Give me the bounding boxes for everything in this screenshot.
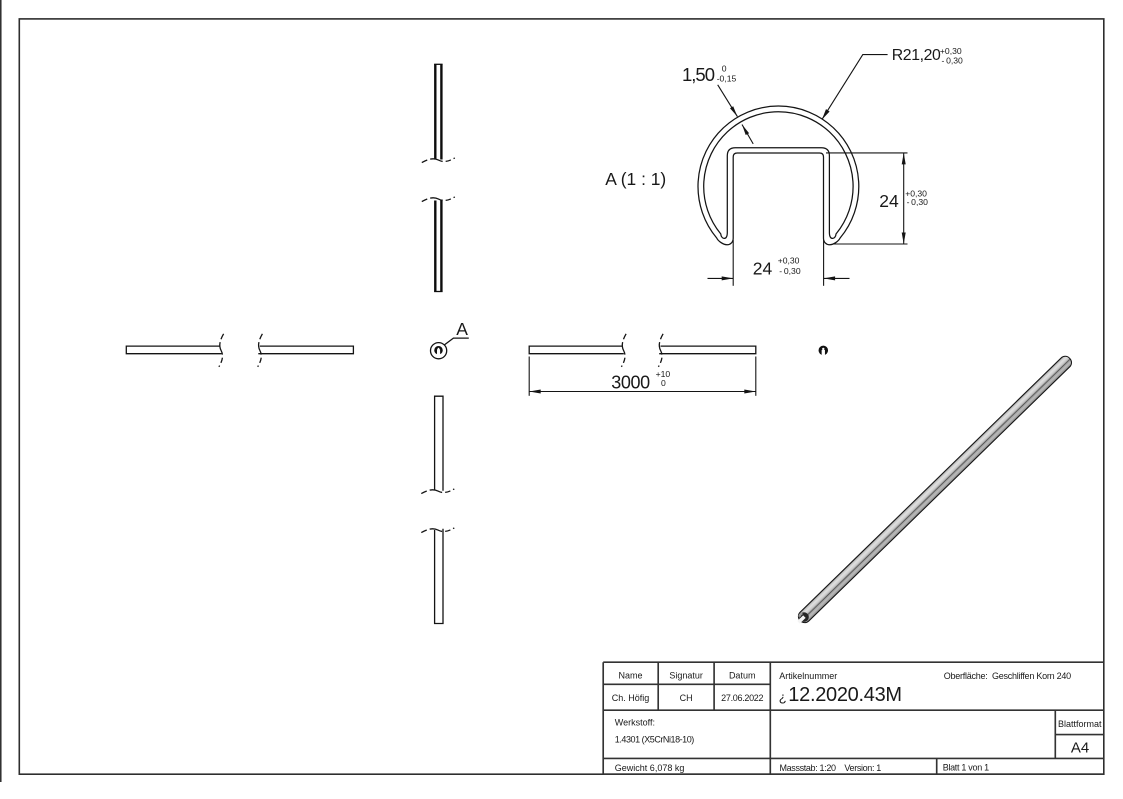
svg-text:1.4301 (X5CrNi18-10): 1.4301 (X5CrNi18-10)	[615, 735, 694, 745]
svg-text:24: 24	[879, 191, 899, 211]
svg-text:0: 0	[661, 378, 666, 388]
svg-text:Blattformat: Blattformat	[1058, 719, 1102, 729]
svg-text:- 0,30: - 0,30	[779, 266, 801, 276]
svg-text:Artikelnummer: Artikelnummer	[779, 671, 837, 681]
svg-text:Ch. Höfig: Ch. Höfig	[612, 693, 650, 703]
svg-text:A (1 : 1): A (1 : 1)	[605, 169, 666, 189]
svg-text:Version: 1: Version: 1	[844, 763, 881, 773]
svg-text:12.2020.43M: 12.2020.43M	[788, 684, 901, 706]
svg-text:24: 24	[753, 259, 773, 279]
svg-text:Datum: Datum	[729, 671, 756, 681]
svg-text:-0,15: -0,15	[717, 73, 737, 83]
svg-text:+0,30: +0,30	[778, 255, 800, 265]
svg-text:27.06.2022: 27.06.2022	[721, 693, 763, 703]
svg-text:Gewicht 6,078 kg: Gewicht 6,078 kg	[615, 763, 685, 773]
svg-text:Werkstoff:: Werkstoff:	[615, 718, 655, 728]
svg-text:Massstab: 1:20: Massstab: 1:20	[780, 763, 836, 773]
svg-text:0: 0	[722, 64, 727, 74]
svg-text:R21,20: R21,20	[892, 47, 941, 64]
svg-text:A: A	[456, 319, 468, 339]
svg-text:CH: CH	[680, 693, 693, 703]
svg-text:- 0,30: - 0,30	[907, 197, 929, 207]
svg-text:A4: A4	[1071, 740, 1089, 757]
svg-text:¿: ¿	[779, 689, 787, 704]
svg-text:- 0,30: - 0,30	[942, 55, 964, 65]
svg-text:Name: Name	[618, 671, 642, 681]
svg-text:3000: 3000	[611, 373, 650, 393]
svg-text:Signatur: Signatur	[669, 671, 703, 681]
svg-text:Blatt 1 von 1: Blatt 1 von 1	[943, 763, 989, 773]
svg-text:Oberfläche: Geschliffen Korn: Oberfläche: Geschliffen Korn 240	[944, 671, 1071, 681]
svg-text:1,50: 1,50	[682, 64, 715, 85]
